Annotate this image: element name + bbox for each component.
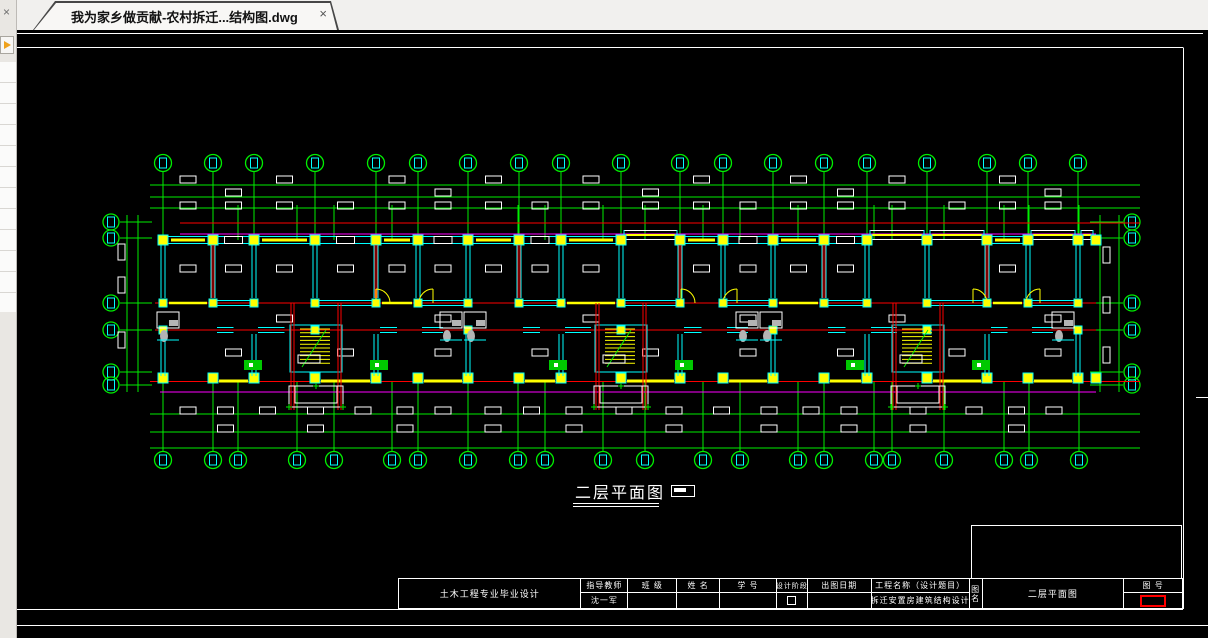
orange-arrow-icon xyxy=(4,41,11,49)
title-block-class: 班 级 xyxy=(628,579,677,608)
plan-caption-text: 二层平面图 xyxy=(575,479,665,503)
title-block-fig-label: 图名 xyxy=(970,579,983,608)
stage-box-glyph xyxy=(787,596,796,605)
cad-application-window: { "window": { "tab_title": "我为家乡做贡献-农村拆迁… xyxy=(0,0,1208,638)
scale-symbol-icon xyxy=(671,485,695,497)
title-block-project-name: 工程名称（设计题目） 拆迁安置房建筑结构设计 xyxy=(872,579,970,608)
left-tool-panel: × xyxy=(0,0,17,638)
tab-title: 我为家乡做贡献-农村拆迁...结构图.dwg xyxy=(71,7,298,26)
drawing-canvas[interactable]: 二层平面图 土木工程专业毕业设计 指导教师 沈一军 班 级 姓 名 学 号 设计… xyxy=(17,30,1208,638)
title-block-stage: 设计阶段 xyxy=(777,579,808,608)
title-block-upper-box xyxy=(971,525,1182,579)
title-block-fig-value: 二层平面图 xyxy=(983,579,1125,608)
title-block-name: 姓 名 xyxy=(677,579,720,608)
sheet-number-highlight xyxy=(1140,595,1166,607)
caption-underline-2 xyxy=(573,506,659,507)
title-block: 土木工程专业毕业设计 指导教师 沈一军 班 级 姓 名 学 号 设计阶段 出图日… xyxy=(398,578,1183,609)
title-block-project: 土木工程专业毕业设计 xyxy=(399,579,581,608)
panel-empty-rows xyxy=(0,62,16,312)
title-block-advisor: 指导教师 沈一军 xyxy=(581,579,628,608)
title-block-student-id: 学 号 xyxy=(720,579,777,608)
caption-underline-1 xyxy=(573,503,659,504)
title-block-sheet-no: 图 号 xyxy=(1124,579,1182,608)
panel-arrow-button[interactable] xyxy=(0,36,14,54)
panel-close-icon[interactable]: × xyxy=(3,6,10,18)
tab-close-icon[interactable]: × xyxy=(319,7,327,20)
file-tab-bar: 我为家乡做贡献-农村拆迁...结构图.dwg × xyxy=(17,0,1208,30)
drawing-file-tab[interactable]: 我为家乡做贡献-农村拆迁...结构图.dwg × xyxy=(33,1,339,30)
title-block-date: 出图日期 xyxy=(808,579,872,608)
plan-caption: 二层平面图 xyxy=(575,479,695,503)
